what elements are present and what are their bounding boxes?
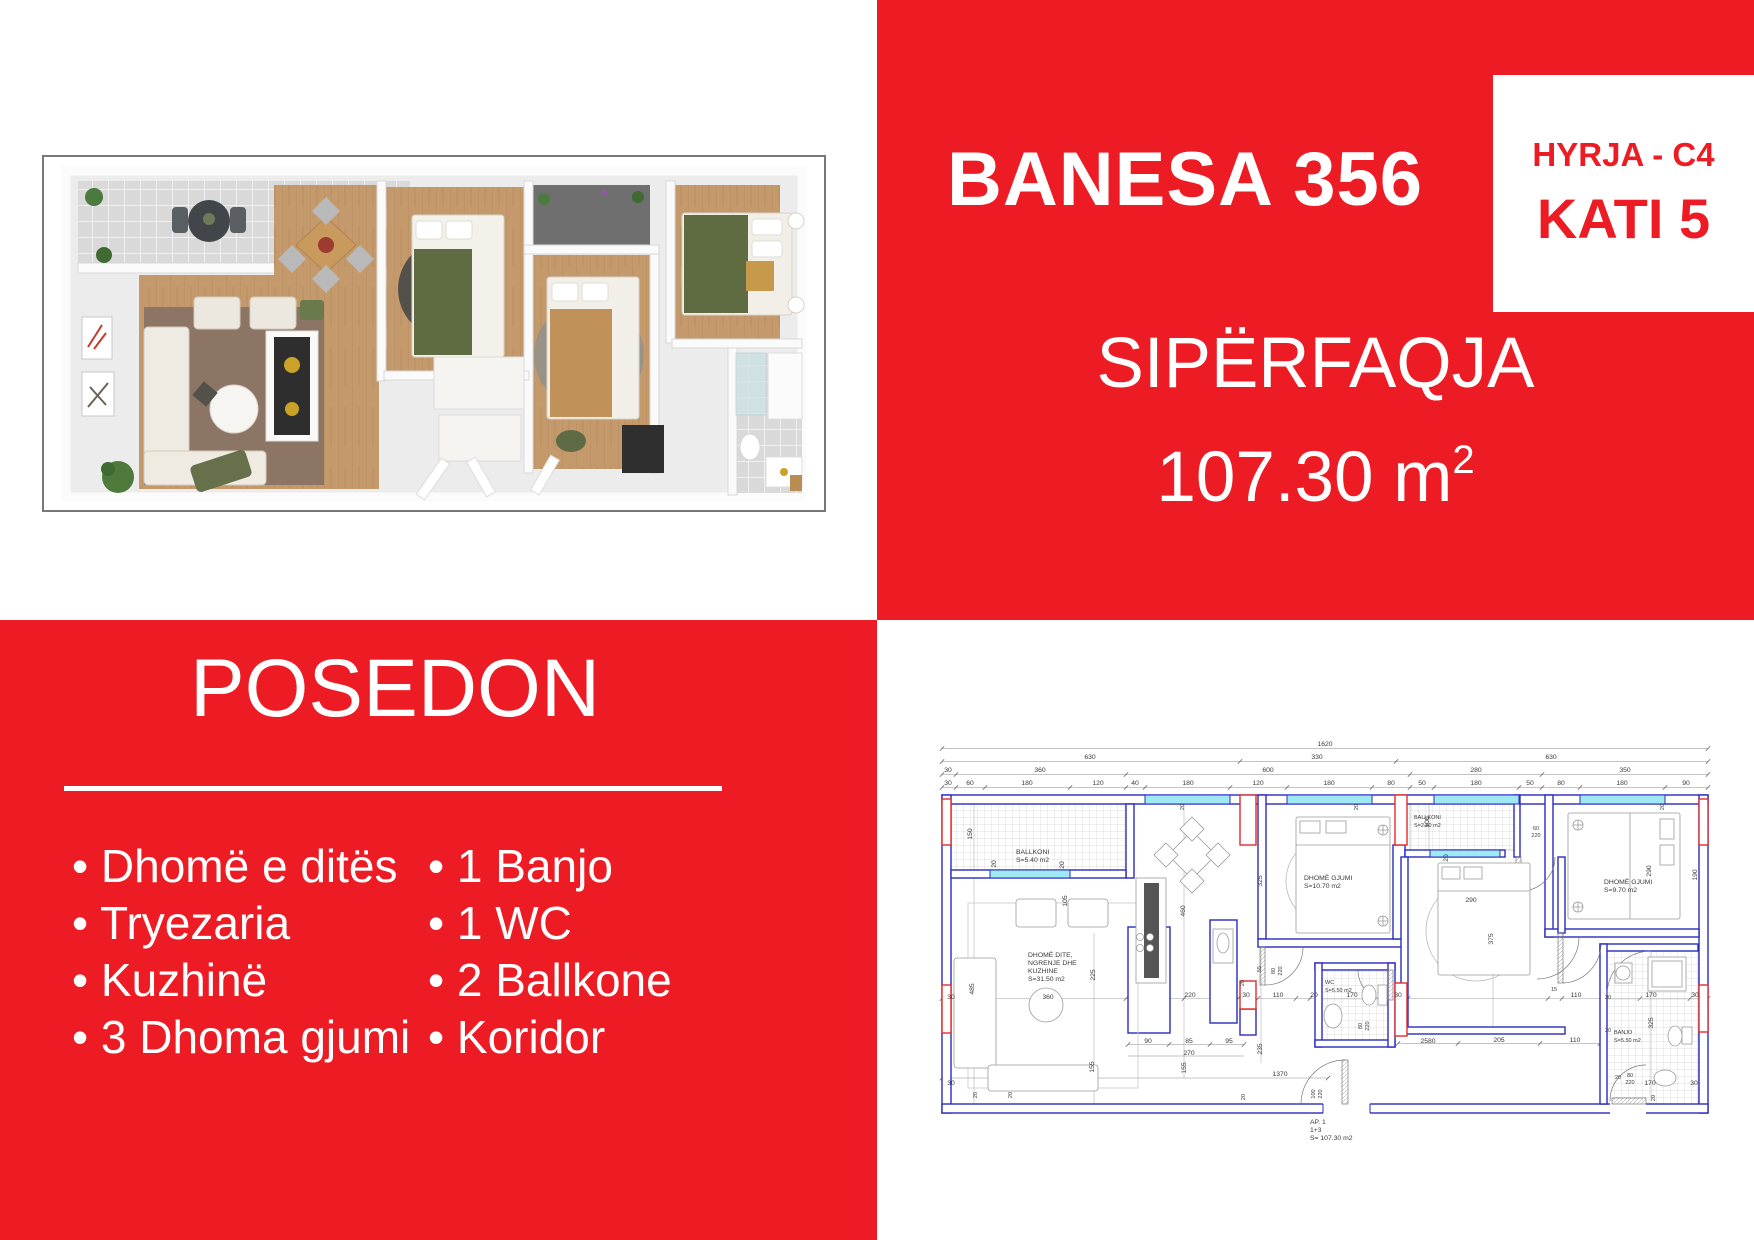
svg-text:20: 20 — [1008, 1092, 1014, 1098]
svg-text:155: 155 — [1089, 1061, 1096, 1073]
svg-text:20: 20 — [991, 860, 998, 868]
svg-text:220: 220 — [1365, 1021, 1371, 1030]
feature-item: • Kuzhinë — [72, 952, 410, 1009]
svg-text:30: 30 — [1242, 992, 1250, 999]
svg-text:85: 85 — [1185, 1038, 1193, 1045]
svg-text:90: 90 — [1144, 1038, 1152, 1045]
svg-text:90: 90 — [1682, 780, 1690, 787]
area-label: SIPËRFAQJA — [877, 316, 1754, 412]
svg-text:170: 170 — [1645, 992, 1657, 999]
feature-item: • 3 Dhoma gjumi — [72, 1009, 410, 1066]
feature-item: • 1 WC — [428, 895, 672, 952]
floor-plan-drawing: 1620630330630303606002803503060180120401… — [928, 733, 1728, 1153]
svg-text:290: 290 — [1465, 897, 1477, 904]
svg-text:80: 80 — [1358, 1023, 1364, 1029]
svg-text:630: 630 — [1084, 754, 1096, 761]
svg-text:40: 40 — [1131, 780, 1139, 787]
svg-text:290: 290 — [1646, 865, 1653, 877]
entry-label: HYRJA - C4 — [1532, 136, 1714, 174]
feature-item: • 1 Banjo — [428, 838, 672, 895]
svg-text:60: 60 — [966, 780, 974, 787]
svg-text:20: 20 — [1605, 995, 1611, 1001]
svg-text:220: 220 — [1184, 992, 1196, 999]
feature-item: • Dhomë e ditës — [72, 838, 410, 895]
svg-text:180: 180 — [1470, 780, 1482, 787]
svg-text:80: 80 — [1627, 1073, 1633, 1079]
floor-label: KATI 5 — [1537, 186, 1710, 251]
svg-text:20: 20 — [1354, 804, 1360, 810]
svg-text:150: 150 — [967, 828, 974, 840]
feature-item: • 2 Ballkone — [428, 952, 672, 1009]
svg-text:180: 180 — [1182, 780, 1194, 787]
svg-text:1370: 1370 — [1272, 1071, 1287, 1078]
svg-text:20: 20 — [1059, 861, 1066, 869]
svg-text:20: 20 — [1180, 804, 1186, 810]
feature-item: • Tryezaria — [72, 895, 410, 952]
svg-text:20: 20 — [1443, 854, 1450, 862]
svg-text:80: 80 — [1557, 780, 1565, 787]
svg-text:325: 325 — [1257, 875, 1264, 887]
svg-text:30: 30 — [1691, 992, 1699, 999]
svg-text:325: 325 — [1648, 1017, 1655, 1029]
svg-text:100: 100 — [1311, 1089, 1317, 1098]
svg-text:95: 95 — [1225, 1038, 1233, 1045]
svg-text:235: 235 — [1257, 1043, 1264, 1055]
svg-text:20: 20 — [1660, 804, 1666, 810]
svg-text:190: 190 — [1692, 869, 1699, 881]
floorplan-3d-render — [42, 155, 826, 512]
feature-list-left: • Dhomë e ditës• Tryezaria• Kuzhinë• 3 D… — [72, 838, 410, 1066]
bath-door-opening — [1610, 1103, 1646, 1114]
svg-text:110: 110 — [1570, 1037, 1581, 1044]
svg-text:2580: 2580 — [1420, 1038, 1435, 1045]
svg-text:20: 20 — [1310, 992, 1318, 999]
svg-text:30: 30 — [947, 994, 955, 1001]
svg-text:30: 30 — [947, 1080, 955, 1087]
svg-text:20: 20 — [973, 1092, 979, 1098]
svg-text:30: 30 — [1690, 1080, 1698, 1087]
svg-text:20: 20 — [1240, 980, 1246, 986]
svg-text:460: 460 — [1180, 905, 1187, 917]
svg-text:220: 220 — [1278, 966, 1284, 975]
svg-text:120: 120 — [1252, 780, 1264, 787]
svg-text:110: 110 — [1273, 992, 1284, 999]
area-value: 107.30 m2 — [877, 412, 1754, 526]
svg-text:180: 180 — [1021, 780, 1033, 787]
svg-text:30: 30 — [1394, 992, 1402, 999]
svg-text:630: 630 — [1545, 754, 1557, 761]
svg-text:280: 280 — [1470, 767, 1482, 774]
svg-text:30: 30 — [944, 767, 952, 774]
svg-text:DHOMË DITE,NGRENJE DHEKUZHINES: DHOMË DITE,NGRENJE DHEKUZHINES=31.50 m2 — [1028, 951, 1077, 983]
svg-text:350: 350 — [1619, 767, 1631, 774]
unit-title: BANESA 356 — [877, 136, 1493, 223]
svg-text:600: 600 — [1262, 767, 1274, 774]
svg-text:120: 120 — [1092, 780, 1104, 787]
svg-text:205: 205 — [1493, 1037, 1505, 1044]
svg-text:1620: 1620 — [1317, 741, 1332, 748]
svg-text:270: 270 — [1183, 1050, 1195, 1057]
svg-text:50: 50 — [1418, 780, 1426, 787]
svg-text:105: 105 — [1062, 895, 1069, 907]
svg-text:20: 20 — [1605, 1028, 1611, 1034]
svg-text:30: 30 — [944, 780, 952, 787]
svg-text:485: 485 — [969, 983, 976, 995]
entry-floor-box: HYRJA - C4 KATI 5 — [1493, 75, 1754, 312]
svg-text:80: 80 — [1271, 968, 1277, 974]
svg-text:220: 220 — [1318, 1089, 1324, 1098]
svg-text:BALLKONIS=5.40 m2: BALLKONIS=5.40 m2 — [1016, 849, 1049, 864]
svg-text:180: 180 — [1616, 780, 1628, 787]
svg-text:220: 220 — [1531, 833, 1540, 839]
svg-text:20: 20 — [1651, 1095, 1657, 1101]
svg-text:375: 375 — [1488, 933, 1495, 945]
feature-list-right: • 1 Banjo• 1 WC• 2 Ballkone• Koridor — [428, 838, 672, 1066]
svg-text:80: 80 — [1387, 780, 1395, 787]
svg-text:50: 50 — [1526, 780, 1534, 787]
svg-text:360: 360 — [1042, 994, 1054, 1001]
svg-text:330: 330 — [1311, 754, 1323, 761]
svg-text:220: 220 — [1625, 1080, 1634, 1086]
svg-text:170: 170 — [1644, 1080, 1656, 1087]
svg-text:360: 360 — [1034, 767, 1046, 774]
svg-text:AP. 11+3S= 107.30 m2: AP. 11+3S= 107.30 m2 — [1310, 1119, 1353, 1142]
area-block: SIPËRFAQJA 107.30 m2 — [877, 316, 1754, 526]
svg-text:225: 225 — [1090, 969, 1097, 981]
entrance-opening — [1323, 1103, 1370, 1114]
svg-text:20: 20 — [1615, 1075, 1621, 1081]
svg-text:155: 155 — [1181, 1062, 1188, 1074]
svg-text:110: 110 — [1571, 992, 1582, 999]
divider-line — [64, 786, 722, 791]
svg-text:55: 55 — [1257, 966, 1263, 972]
feature-item: • Koridor — [428, 1009, 672, 1066]
posedon-title: POSEDON — [0, 642, 790, 736]
area-exponent: 2 — [1452, 438, 1474, 482]
svg-text:180: 180 — [1323, 780, 1335, 787]
svg-text:20: 20 — [1241, 1094, 1247, 1100]
svg-text:60: 60 — [1533, 826, 1539, 832]
svg-text:15: 15 — [1551, 987, 1557, 993]
